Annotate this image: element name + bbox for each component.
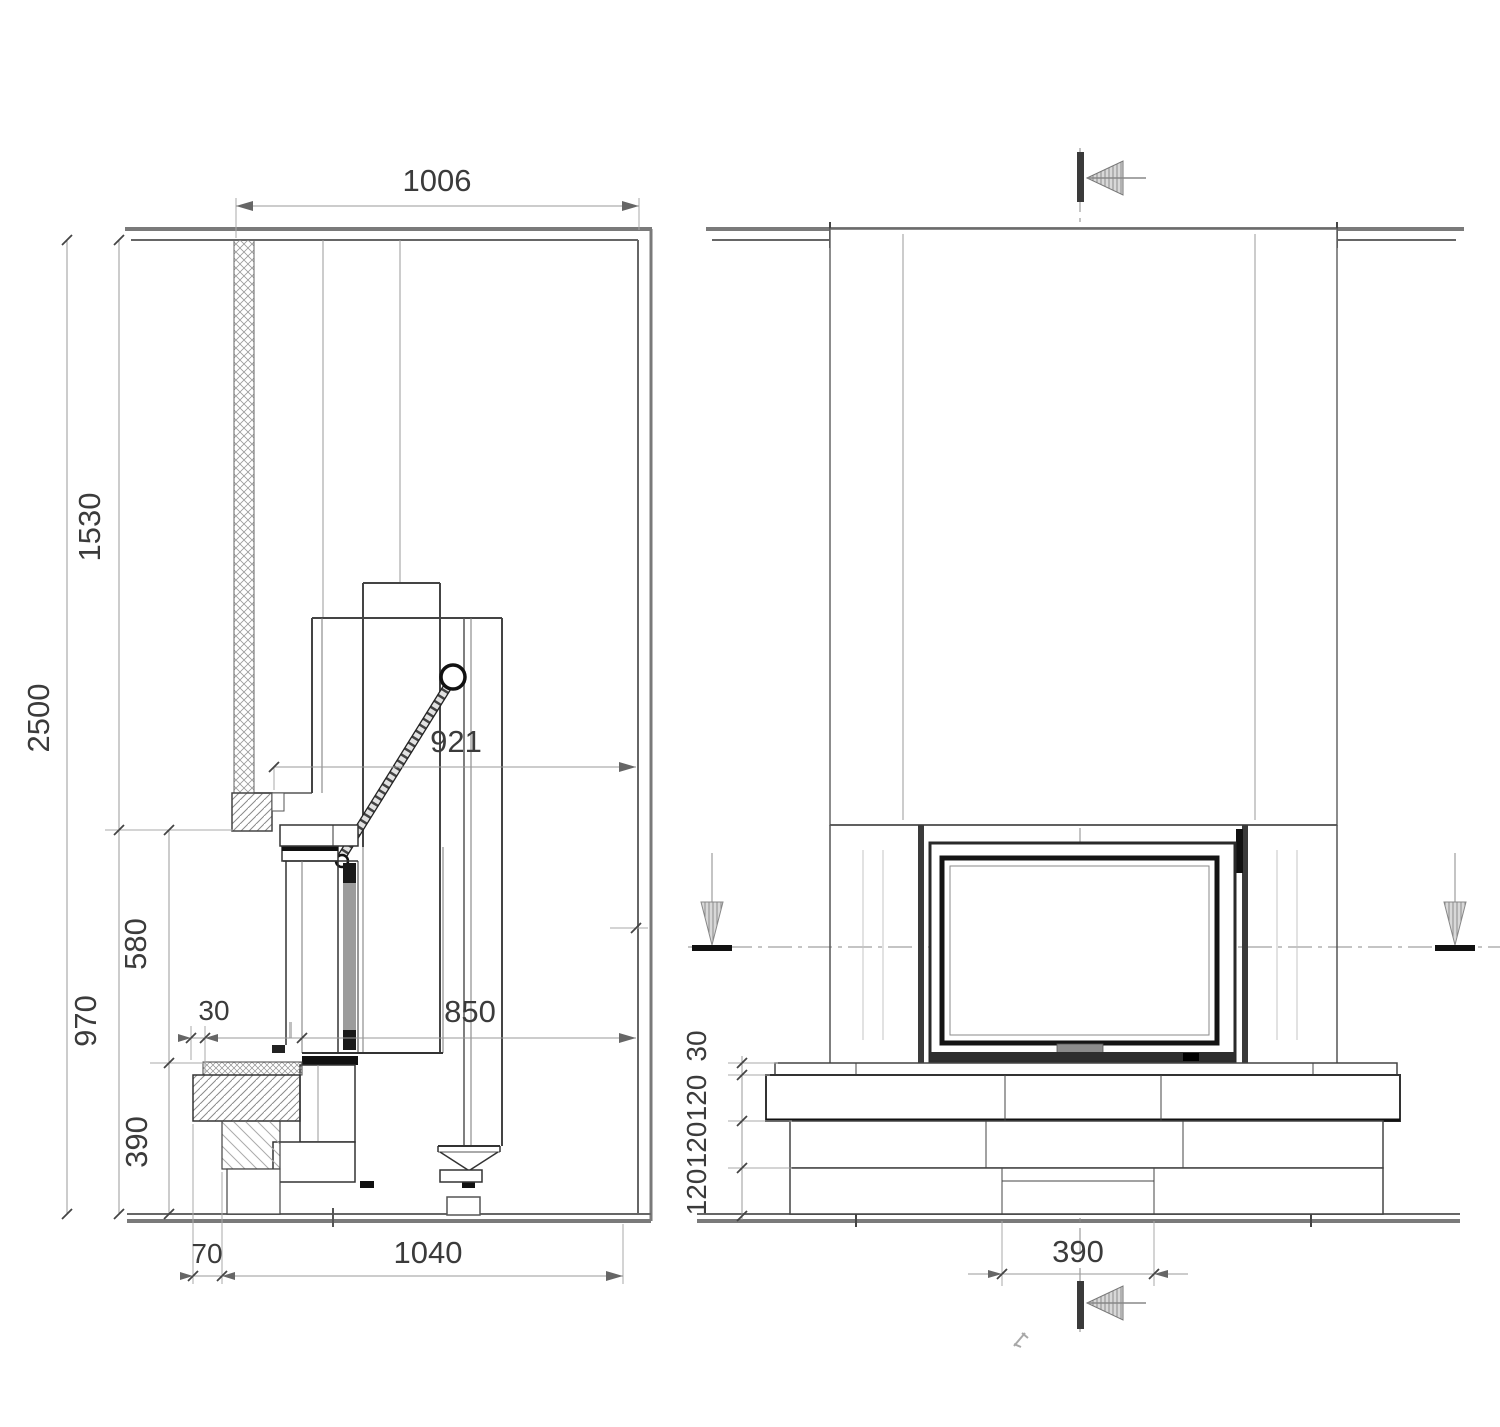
hearth-base-section [193,1062,302,1214]
dim-label-70: 70 [191,1238,222,1269]
hearth-slab-hatch [203,1062,302,1075]
dim-label-1040: 1040 [394,1235,463,1270]
hearth-slab [775,1063,1397,1075]
air-intake-funnel [438,1146,500,1215]
base-block-hatch [193,1075,300,1121]
dim-label-921: 921 [430,724,482,759]
dim-label-120-1: 120 [681,1075,712,1122]
base-course-1 [766,1075,1400,1121]
dim-label-2500: 2500 [21,684,56,753]
dim-label-120-2: 120 [681,1122,712,1169]
technical-drawing-canvas: 1006 2500 1530 970 580 390 30 921 850 70… [0,0,1500,1427]
dim-label-390-front: 390 [1052,1234,1104,1269]
air-lever [1183,1053,1199,1061]
dim-label-850: 850 [444,994,496,1029]
dim-label-30-front: 30 [681,1030,712,1061]
base-course-3 [790,1168,1383,1214]
level-marker-icon [692,853,732,951]
floor-duct [447,1197,480,1215]
door-handle [1057,1044,1103,1053]
base-course-2 [790,1121,1383,1168]
extension-lines [105,198,648,1284]
flue-duct [363,583,443,1053]
damper-handle-icon [441,665,465,689]
dim-label-30-side: 30 [198,995,229,1026]
section-arrow-icon [1077,1281,1146,1329]
dim-label-1530: 1530 [72,493,107,562]
wall-cladding-hatch [234,240,254,793]
chimney-breast-panel [830,229,1337,825]
dim-label-970: 970 [68,995,103,1047]
base-block-hatch [222,1121,280,1169]
fireplace-installation-drawing: 1006 2500 1530 970 580 390 30 921 850 70… [0,0,1500,1427]
section-arrow-icon [1077,152,1146,202]
level-marker-icon [1435,853,1475,951]
pen-artifact-mark [1014,1333,1028,1347]
firebox-door-side [272,861,443,1065]
door-sill-dark [302,1056,358,1065]
firebox-front [930,843,1235,1062]
dim-label-580: 580 [118,918,153,970]
cornice-tab [272,793,284,811]
hearth-base-front [766,1063,1400,1214]
door-knob [272,1045,285,1053]
cornice-block-hatch [232,793,272,831]
dim-label-390-side: 390 [119,1116,154,1168]
stove-foot [360,1181,374,1188]
dim-label-1006: 1006 [403,163,472,198]
firebox-door [942,858,1217,1043]
mantel-slab [280,825,358,846]
door-glass-side [343,863,356,1050]
dim-label-120-3: 120 [681,1169,712,1216]
front-view: 30 120 120 120 390 [681,148,1500,1347]
base-block [227,1169,280,1214]
door-handle-side [289,1022,292,1038]
side-view: 1006 2500 1530 970 580 390 30 921 850 70… [21,163,652,1284]
